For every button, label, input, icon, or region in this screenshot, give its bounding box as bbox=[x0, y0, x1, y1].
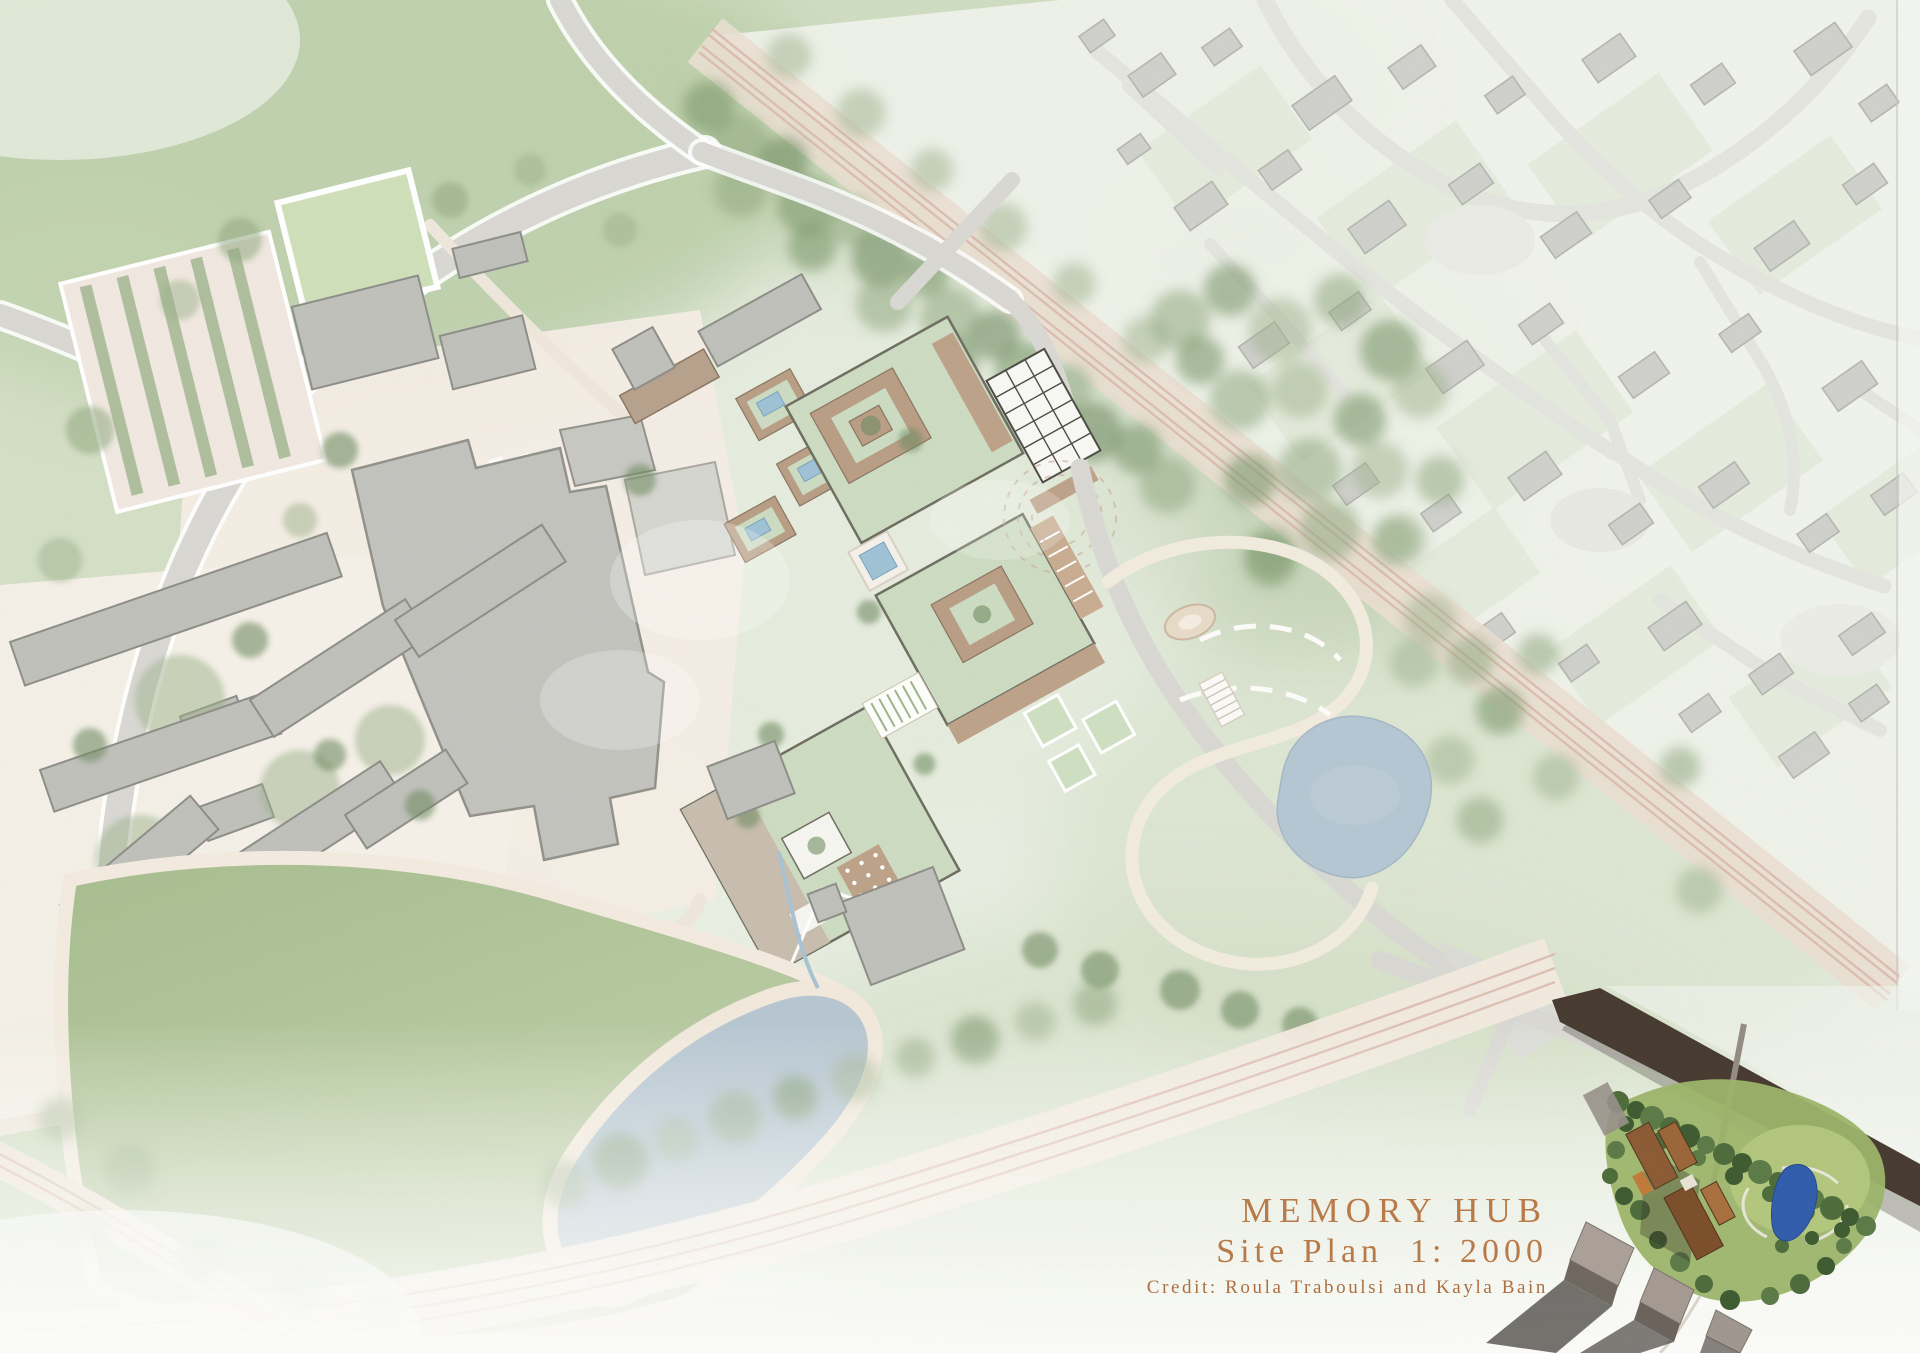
title-block: MEMORY HUB Site Plan 1: 2000 Credit: Rou… bbox=[1147, 1192, 1548, 1299]
project-title: MEMORY HUB bbox=[1147, 1192, 1548, 1231]
paper-texture bbox=[0, 0, 1920, 1353]
credit-line: Credit: Roula Traboulsi and Kayla Bain bbox=[1147, 1277, 1548, 1299]
scale-label: Site Plan 1: 2000 bbox=[1147, 1233, 1548, 1270]
site-plan-canvas: MEMORY HUB Site Plan 1: 2000 Credit: Rou… bbox=[0, 0, 1920, 1353]
site-plan-map bbox=[0, 0, 1920, 1353]
